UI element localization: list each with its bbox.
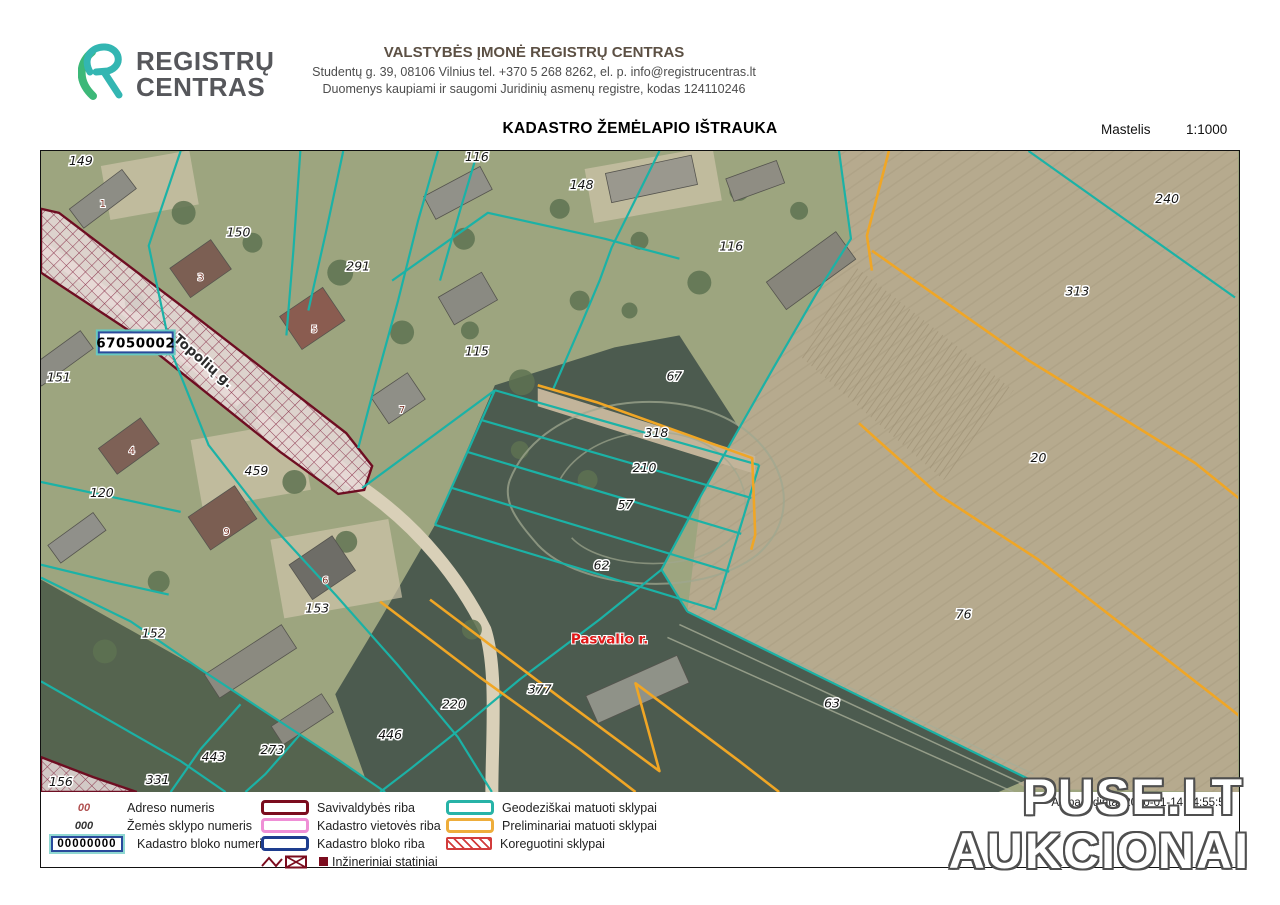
parcel-number-label: 149: [69, 153, 93, 168]
legend-item: Inžineriniai statiniai: [261, 853, 441, 870]
legend-boundaries-column: Savivaldybės ribaKadastro vietovės ribaK…: [261, 799, 441, 871]
parcel-number-label: 446: [378, 727, 402, 742]
parcel-number-label: 76: [956, 607, 972, 622]
organization-address: Studentų g. 39, 08106 Vilnius tel. +370 …: [249, 64, 819, 81]
parcel-number-label: 57: [618, 497, 634, 512]
organization-name: VALSTYBĖS ĮMONĖ REGISTRŲ CENTRAS: [249, 44, 819, 61]
parcel-number-label: 220: [442, 696, 466, 711]
legend-label: Koreguotini sklypai: [500, 837, 605, 851]
address-number-label: 5: [311, 324, 317, 335]
address-number-label: 9: [223, 527, 229, 538]
aerial-map-canvas: 1491502911161481161156715112045915315215…: [41, 151, 1238, 792]
tree: [148, 571, 170, 593]
legend-label: Kadastro vietovės riba: [317, 819, 441, 833]
tree: [390, 320, 414, 344]
parcel-number-label: 291: [346, 259, 370, 274]
parcel-number-label: 116: [465, 151, 489, 164]
parcel-number-label: 116: [719, 239, 743, 254]
legend-label: Adreso numeris: [127, 801, 215, 815]
tree: [509, 369, 535, 395]
address-number-label: 4: [129, 446, 135, 457]
legend-item: Geodeziškai matuoti sklypai: [446, 799, 657, 816]
legend-label: Geodeziškai matuoti sklypai: [502, 801, 657, 815]
organization-register: Duomenys kaupiami ir saugomi Juridinių a…: [249, 81, 819, 98]
engineering-square-icon: [319, 857, 328, 866]
address-number-label: 7: [399, 405, 405, 416]
district-name-label: Pasvalio r.: [571, 632, 648, 647]
organization-info: VALSTYBĖS ĮMONĖ REGISTRŲ CENTRAS Student…: [249, 44, 819, 98]
legend-swatch: [446, 818, 494, 833]
parcel-number-label: 377: [528, 681, 552, 696]
tree: [622, 303, 638, 319]
registru-centras-logo-icon: [78, 42, 128, 105]
address-number-label: 6: [322, 576, 328, 587]
parcel-number-label: 443: [202, 749, 226, 764]
legend-sample: 00000000: [51, 836, 123, 852]
parcel-number-label: 273: [261, 742, 285, 757]
legend-swatch: [446, 800, 494, 815]
legend-label: Kadastro bloko numeris: [137, 837, 268, 851]
cadastral-sheet: 1491502911161481161156715112045915315215…: [40, 150, 1240, 868]
block-number-label: 67050002: [96, 336, 175, 351]
legend-swatch: [261, 836, 309, 851]
legend-label: Kadastro bloko riba: [317, 837, 425, 851]
registru-centras-logo: REGISTRŲ CENTRAS: [78, 42, 274, 105]
tree: [790, 202, 808, 220]
cadastral-map: 1491502911161481161156715112045915315215…: [41, 151, 1239, 792]
map-legend: 00Adreso numeris000Žemės sklypo numeris0…: [41, 793, 1239, 867]
parcel-number-label: 459: [245, 463, 269, 478]
address-number-label: 1: [100, 199, 106, 210]
legend-item: Kadastro vietovės riba: [261, 817, 441, 834]
parcel-number-label: 240: [1155, 191, 1179, 206]
parcel-number-label: 63: [824, 695, 840, 710]
scale-label: Mastelis: [1101, 122, 1151, 137]
page-title: KADASTRO ŽEMĖLAPIO IŠTRAUKA: [502, 120, 777, 137]
parcel-number-label: 318: [645, 425, 669, 440]
legend-item: Koreguotini sklypai: [446, 835, 657, 852]
legend-swatch: [261, 818, 309, 833]
tree: [550, 199, 570, 219]
legend-label: Inžineriniai statiniai: [332, 855, 438, 869]
legend-item: Kadastro bloko riba: [261, 835, 441, 852]
legend-item: 00Adreso numeris: [49, 799, 268, 816]
legend-item: Preliminariai matuoti sklypai: [446, 817, 657, 834]
tree: [687, 271, 711, 295]
parcel-number-label: 152: [142, 625, 166, 640]
parcel-number-label: 115: [465, 343, 489, 358]
printed-timestamp: Atspausdinta: 2020-01-14 14:55:55: [1051, 797, 1231, 809]
legend-swatch: [261, 800, 309, 815]
tree: [461, 321, 479, 339]
legend-sample: 000: [49, 820, 119, 832]
parcel-number-label: 210: [633, 460, 657, 475]
parcel-number-label: 20: [1031, 450, 1047, 465]
legend-numbers-column: 00Adreso numeris000Žemės sklypo numeris0…: [49, 799, 268, 853]
tree: [282, 470, 306, 494]
legend-sample: 00: [49, 802, 119, 814]
scale-value: 1:1000: [1186, 122, 1227, 137]
tree: [570, 291, 590, 311]
legend-item: 000Žemės sklypo numeris: [49, 817, 268, 834]
parcel-number-label: 313: [1066, 284, 1090, 299]
legend-item: 00000000Kadastro bloko numeris: [49, 835, 268, 852]
address-number-label: 3: [197, 273, 203, 284]
parcel-number-label: 151: [47, 369, 71, 384]
legend-label: Žemės sklypo numeris: [127, 819, 252, 833]
legend-parcels-column: Geodeziškai matuoti sklypaiPreliminariai…: [446, 799, 657, 853]
tree: [511, 441, 529, 459]
parcel-number-label: 148: [570, 177, 594, 192]
parcel-number-label: 62: [594, 558, 610, 573]
legend-item: Savivaldybės riba: [261, 799, 441, 816]
parcel-number-label: 67: [666, 368, 682, 383]
tree: [172, 201, 196, 225]
engineering-symbols-icon: [261, 854, 309, 870]
legend-label: Savivaldybės riba: [317, 801, 415, 815]
parcel-number-label: 156: [49, 774, 73, 789]
tree: [93, 639, 117, 663]
parcel-number-label: 150: [227, 225, 251, 240]
legend-label: Preliminariai matuoti sklypai: [502, 819, 657, 833]
parcel-number-label: 120: [90, 485, 114, 500]
legend-swatch: [446, 837, 492, 850]
parcel-number-label: 331: [146, 772, 170, 787]
parcel-number-label: 153: [305, 601, 329, 616]
